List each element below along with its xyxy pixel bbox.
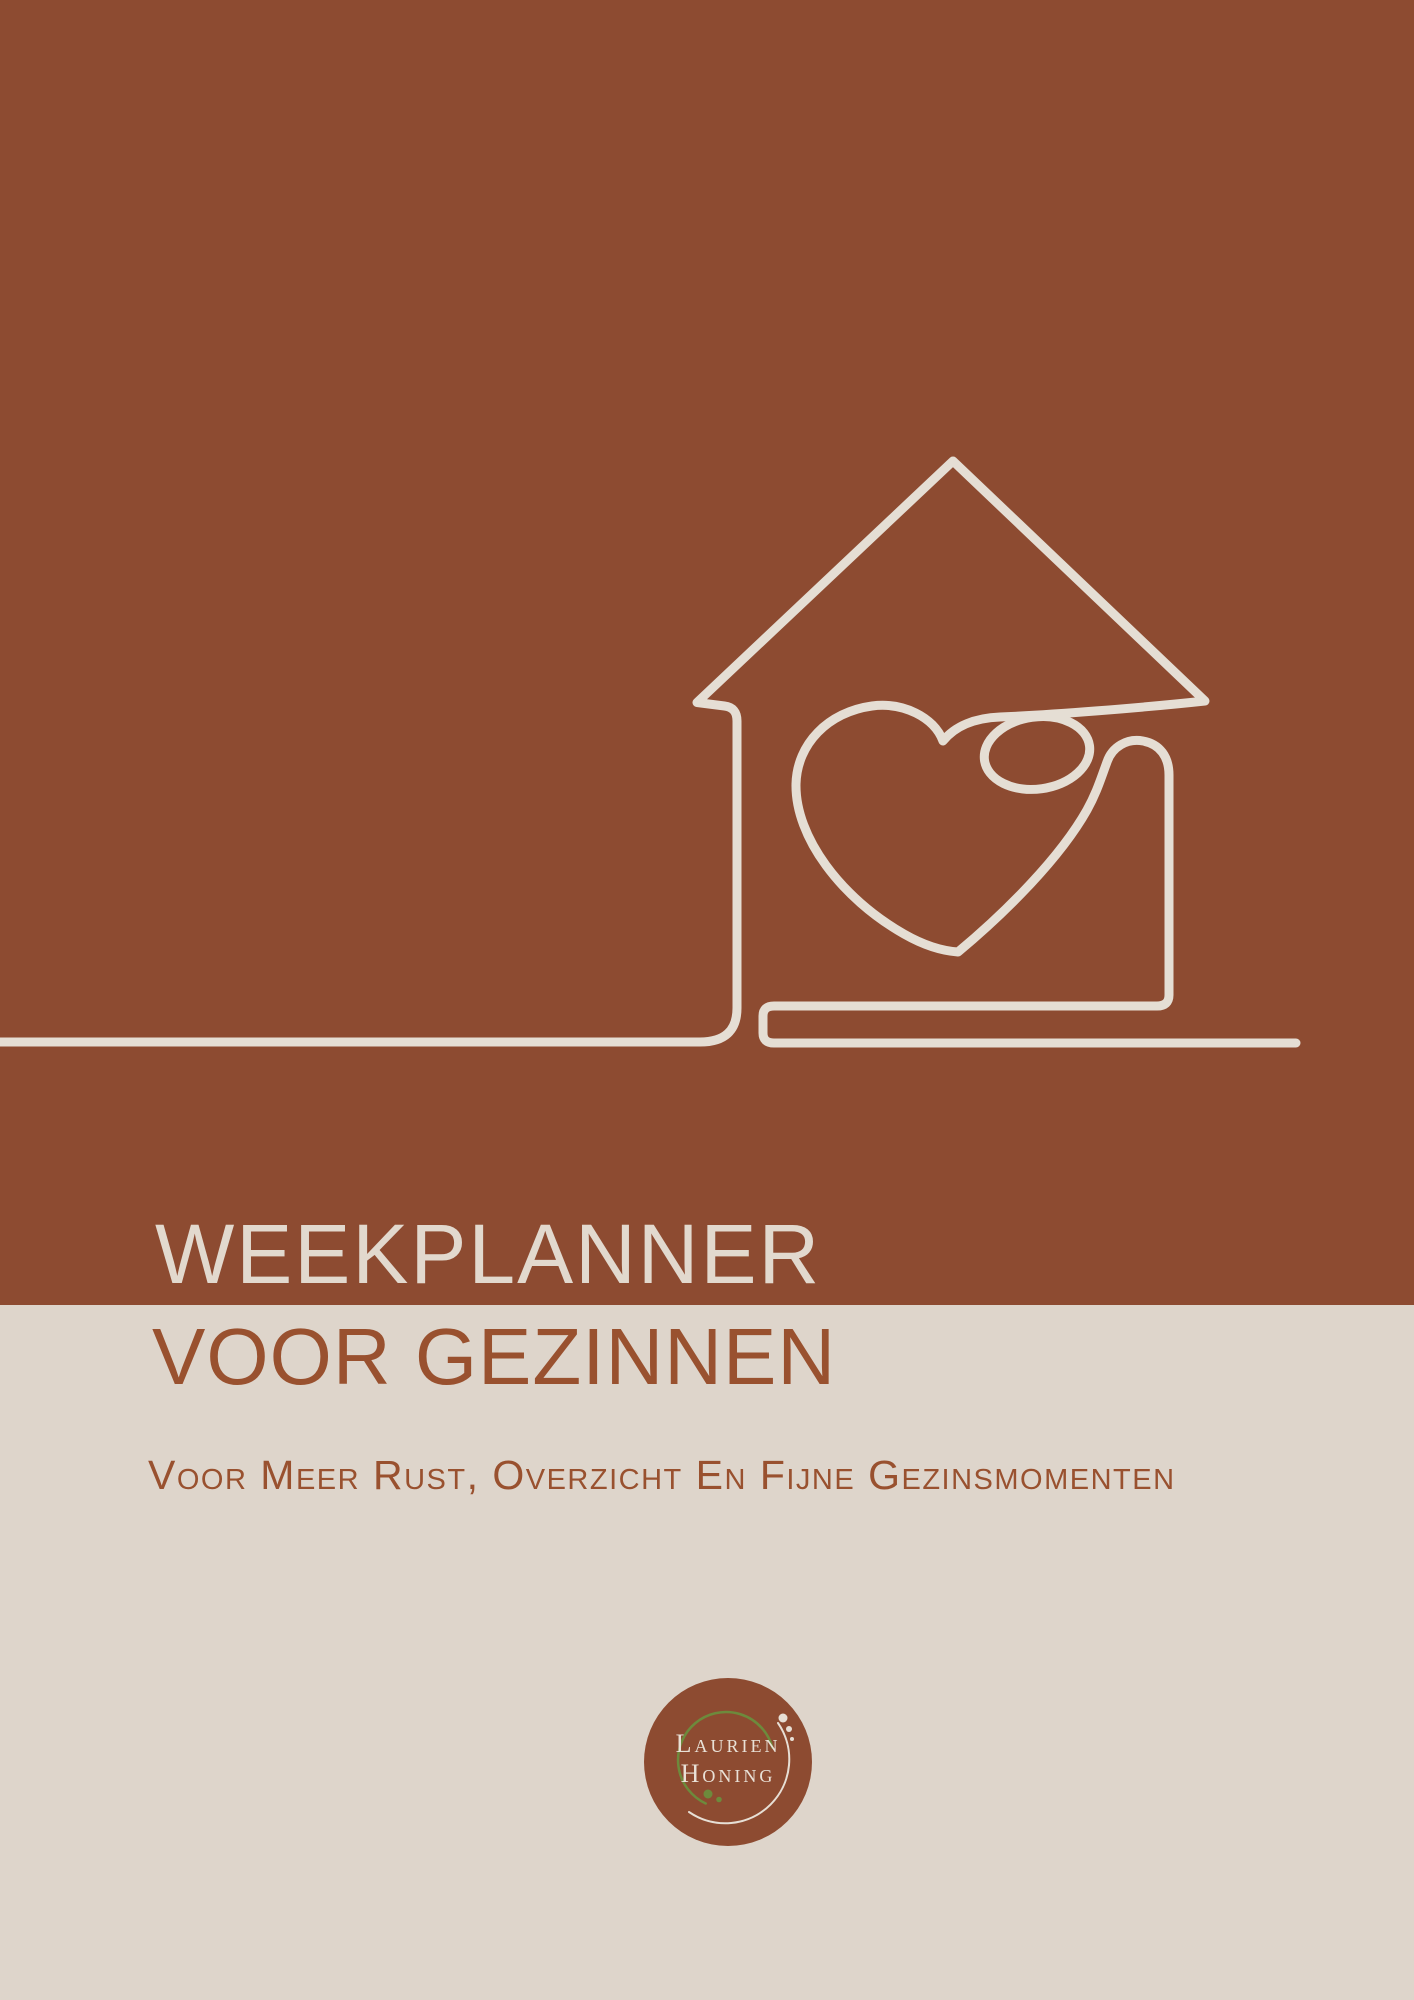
- brand-logo: Laurien Honing: [644, 1678, 812, 1846]
- cream-footer-band: [0, 1305, 1414, 2000]
- cover-subtitle: Voor Meer Rust, Overzicht En Fijne Gezin…: [148, 1452, 1176, 1498]
- logo-name-line1: Laurien: [644, 1730, 812, 1758]
- planner-cover-page: WEEKPLANNER VOOR GEZINNEN Voor Meer Rust…: [0, 0, 1414, 2000]
- cover-title-line2: VOOR GEZINNEN: [152, 1317, 836, 1397]
- logo-name-line2: Honing: [644, 1760, 812, 1788]
- cover-title-line1: WEEKPLANNER: [155, 1212, 821, 1296]
